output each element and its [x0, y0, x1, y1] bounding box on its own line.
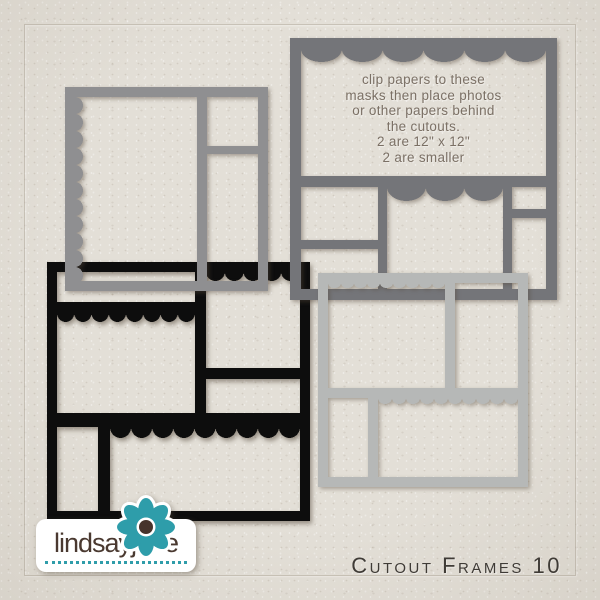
frame-light-scallop-top-left-cell — [328, 283, 445, 288]
frame-light-border-top — [318, 273, 528, 283]
frame-light-divider-main — [318, 388, 528, 398]
frame-light-border-left — [318, 273, 328, 487]
brand-dotted-underline — [45, 561, 187, 564]
frame-light-scallop-bottom-cell — [378, 398, 518, 404]
flower-icon — [114, 494, 178, 558]
frame-light-divider-vertical-top — [445, 273, 455, 398]
brand-logo: lindsayjane — [36, 494, 196, 572]
frame-light-border-right — [518, 273, 528, 487]
frame-light-border-bottom — [318, 477, 528, 487]
product-preview-sheet: clip papers to these masks then place ph… — [0, 0, 600, 600]
frame-light-divider-vertical-bottom — [368, 388, 378, 487]
product-title: Cutout Frames 10 — [351, 553, 562, 579]
